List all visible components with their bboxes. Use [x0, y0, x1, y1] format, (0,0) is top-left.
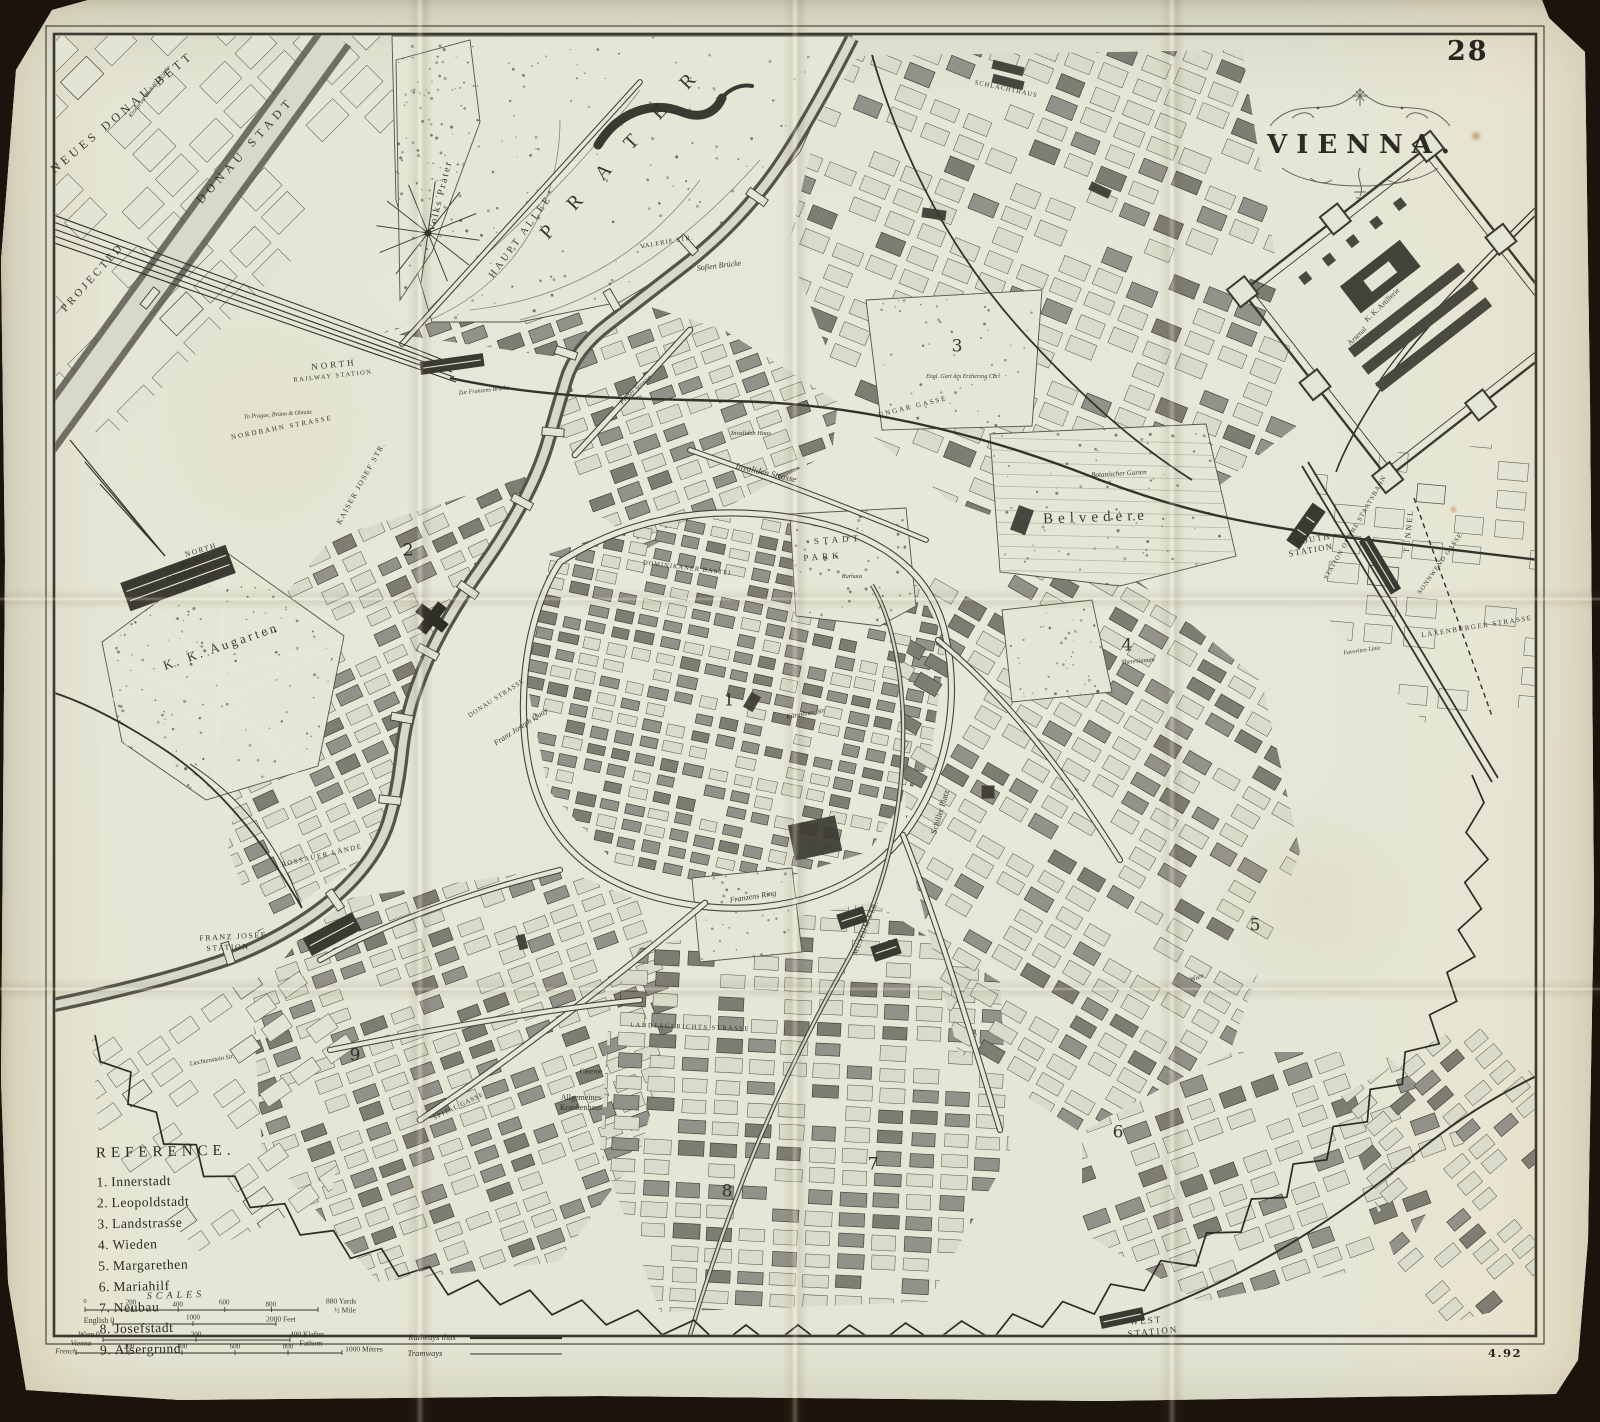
reference-item: 2. Leopoldstadt [97, 1190, 237, 1214]
title-flourish-top [1252, 84, 1468, 128]
reference-legend: REFERENCE. 1. Innerstadt2. Leopoldstadt3… [96, 1143, 240, 1361]
reference-item: 9. Alsergrund [100, 1337, 240, 1361]
plate-number: 28 [1447, 36, 1489, 67]
reference-item: 4. Wieden [98, 1232, 238, 1256]
map-canvas [0, 0, 1600, 1422]
reference-heading: REFERENCE. [96, 1143, 236, 1163]
reference-item: 1. Innerstadt [96, 1169, 236, 1193]
title-flourish-bottom [1252, 162, 1468, 202]
reference-items: 1. Innerstadt2. Leopoldstadt3. Landstras… [96, 1169, 240, 1361]
reference-item: 3. Landstrasse [97, 1211, 237, 1235]
imprint-date-code: 4.92 [1488, 1346, 1522, 1360]
reference-item: 8. Josefstadt [99, 1316, 239, 1340]
reference-item: 6. Mariahilf [99, 1274, 239, 1298]
map-sheet-photo: NEUES DONAU BETTPROJECTEDDONAU STADTKron… [0, 0, 1600, 1422]
reference-item: 5. Margarethen [98, 1253, 238, 1277]
map-title: VIENNA. [1258, 130, 1468, 160]
reference-item: 7. Neubau [99, 1295, 239, 1319]
map-title-block: VIENNA. [1252, 84, 1468, 202]
